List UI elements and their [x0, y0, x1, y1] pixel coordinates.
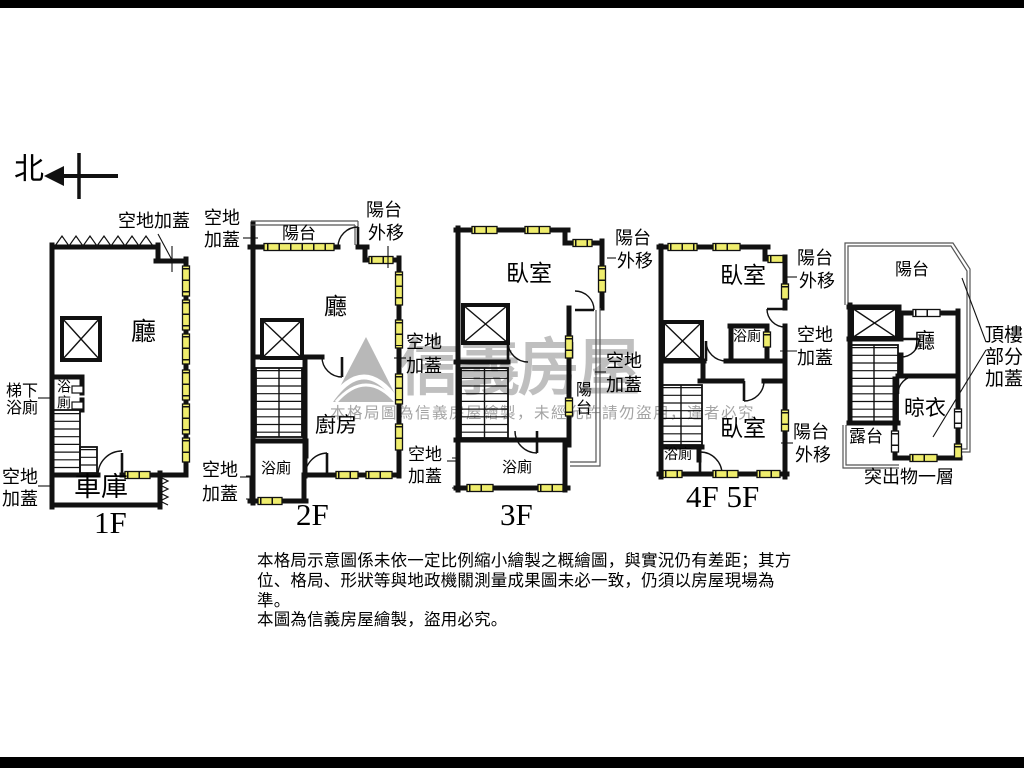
annotation-open-land-1f-bl-line1: 空地	[2, 468, 38, 486]
annotation-open-land-4f-right-line2: 加蓋	[797, 349, 833, 367]
annotation-open-land-2f-bl-line1: 空地	[202, 461, 238, 479]
room-terrace-roof: 露台	[849, 428, 883, 445]
floor-1f-stairs	[52, 410, 97, 475]
annotation-balcony-out-4f-tr-line1: 陽台	[797, 249, 833, 267]
annotation-balcony-out-4f-br-line1: 陽台	[793, 423, 829, 441]
disclaimer-line-1: 本格局示意圖係未依一定比例縮小繪製之概繪圖，與實況仍有差距；其方	[257, 551, 797, 571]
floor-label-2f: 2F	[296, 499, 329, 531]
annotation-open-land-2f-tl-line1: 空地	[204, 209, 240, 227]
floor-3f-leaders	[447, 258, 616, 488]
room-kitchen-2f: 廚房	[315, 415, 357, 436]
floor-2f-stairs	[256, 368, 302, 437]
annotation-open-land-4f-right-line1: 空地	[797, 326, 833, 344]
floor-3f-elevator	[463, 305, 508, 343]
annotation-balcony-out-2f-line2: 外移	[368, 224, 404, 242]
room-bath-2f: 浴廁	[261, 462, 291, 477]
annotation-open-land-3f-right-line2: 加蓋	[606, 376, 642, 394]
room-balcony-2f: 陽台	[282, 225, 316, 242]
annotation-protrusion-one-floor: 突出物一層	[864, 468, 954, 486]
room-balcony-roof: 陽台	[895, 261, 929, 278]
annotation-open-land-3f-right-line1: 空地	[606, 352, 642, 370]
annotation-rooftop-addition-line1: 頂樓	[985, 326, 1023, 345]
disclaimer-text: 本格局示意圖係未依一定比例縮小繪製之概繪圖，與實況仍有差距；其方 位、格局、形狀…	[257, 551, 797, 630]
annotation-balcony-out-3f-line1: 陽台	[615, 229, 651, 247]
floorplan-page: 信義房屋 本格局圖為信義房屋繪製，未經允許請勿盜用，違者必究	[0, 0, 1024, 768]
room-bedroom-4f-top: 臥室	[720, 264, 766, 287]
north-arrow-icon	[44, 153, 118, 199]
floor-1f-fence-zigzag	[55, 236, 168, 505]
annotation-under-stairs-line2: 浴廁	[6, 401, 38, 417]
floor-label-4f5f: 4F 5F	[686, 481, 759, 513]
room-bath-4f-mid: 浴廁	[733, 331, 761, 345]
floor-2f-elevator	[262, 320, 302, 358]
annotation-balcony-out-3f-line2: 外移	[617, 252, 653, 270]
room-bath-1f: 浴廁	[55, 379, 69, 411]
room-garage-1f: 車庫	[74, 474, 128, 502]
annotation-rooftop-addition-line3: 加蓋	[985, 370, 1023, 389]
annotation-open-land-1f-bl-line2: 加蓋	[2, 490, 38, 508]
north-label: 北	[14, 155, 44, 186]
annotation-rooftop-addition-line2: 部分	[985, 348, 1023, 367]
room-bath-4f-bottom: 浴廁	[664, 449, 692, 463]
disclaimer-line-2: 位、格局、形狀等與地政機關測量成果圖未必一致，仍須以房屋現場為準。	[257, 571, 797, 611]
floor-4f-stairs	[661, 385, 702, 445]
annotation-open-land-3f-bl-line2: 加蓋	[408, 468, 442, 485]
room-laundry-roof: 晾衣	[904, 398, 946, 419]
floor-2f-doors	[305, 227, 358, 477]
annotation-balcony-out-2f-line1: 陽台	[366, 201, 402, 219]
room-living-2f: 廳	[324, 295, 347, 318]
room-balcony-strip-3f: 陽台	[573, 381, 589, 417]
floor-1f-windows	[125, 266, 190, 479]
floor-label-3f: 3F	[500, 499, 533, 531]
floor-3f-stairs	[461, 368, 508, 438]
room-bedroom-3f: 臥室	[506, 262, 552, 285]
annotation-under-stairs-line1: 梯下	[6, 384, 38, 400]
floor-1f-leaders	[38, 234, 172, 486]
floor-4f-elevator	[663, 322, 702, 360]
floor-label-1f: 1F	[94, 507, 127, 539]
room-living-1f: 廳	[131, 320, 156, 346]
floorplan-drawing	[0, 0, 1024, 768]
floor-roof-elevator	[852, 308, 897, 338]
annotation-open-land-3f-bl-line1: 空地	[408, 446, 442, 463]
annotation-open-land-2f-tl-line2: 加蓋	[204, 231, 240, 249]
annotation-open-land-2f-right-line1: 空地	[406, 333, 442, 351]
annotation-open-land-covered-1f-top: 空地加蓋	[118, 212, 190, 230]
annotation-balcony-out-4f-br-line2: 外移	[795, 446, 831, 464]
room-living-roof: 廳	[914, 331, 935, 352]
room-bedroom-4f-bottom: 臥室	[720, 417, 766, 440]
annotation-open-land-2f-bl-line2: 加蓋	[202, 485, 238, 503]
disclaimer-line-3: 本圖為信義房屋繪製，盜用必究。	[257, 610, 797, 630]
annotation-open-land-2f-right-line2: 加蓋	[406, 357, 442, 375]
floor-3f-doors	[508, 291, 594, 453]
floor-1f-elevator	[62, 318, 100, 360]
room-bath-3f: 浴廁	[502, 461, 532, 476]
annotation-balcony-out-4f-tr-line2: 外移	[799, 272, 835, 290]
floor-roof-stairs	[850, 345, 898, 423]
